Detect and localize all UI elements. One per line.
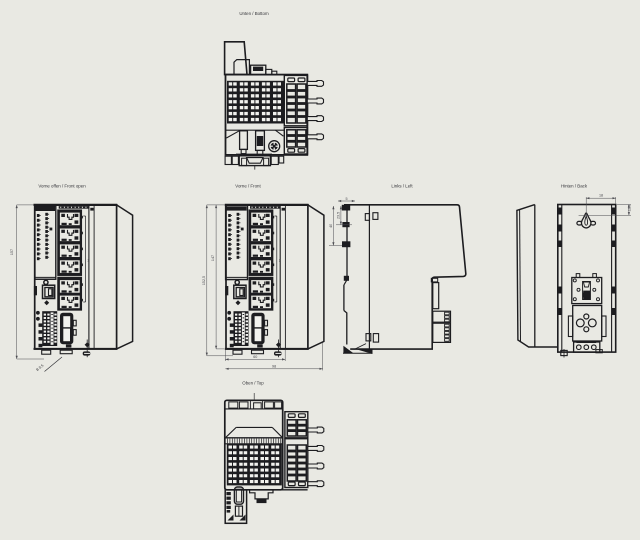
svg-text:2: 2 [279,259,281,263]
svg-text:147: 147 [211,255,215,261]
svg-text:23,5: 23,5 [337,212,341,219]
svg-text:Unten / Bottom: Unten / Bottom [239,11,269,16]
svg-text:2: 2 [88,259,90,263]
svg-text:Oben / Top: Oben / Top [242,381,264,386]
svg-text:60: 60 [253,355,257,359]
svg-text:Vorne offen / Front open: Vorne offen / Front open [38,184,86,189]
svg-text:157: 157 [10,249,14,255]
svg-text:Links / Left: Links / Left [391,184,413,189]
svg-text:12,5: 12,5 [628,205,632,212]
svg-text:98: 98 [272,365,276,369]
svg-text:18: 18 [599,194,603,198]
svg-text:40: 40 [329,224,333,228]
svg-text:152,5: 152,5 [202,276,206,285]
svg-text:Vorne / Front: Vorne / Front [235,184,261,189]
svg-text:Hinten / Back: Hinten / Back [561,184,588,189]
svg-text:5: 5 [345,197,347,201]
